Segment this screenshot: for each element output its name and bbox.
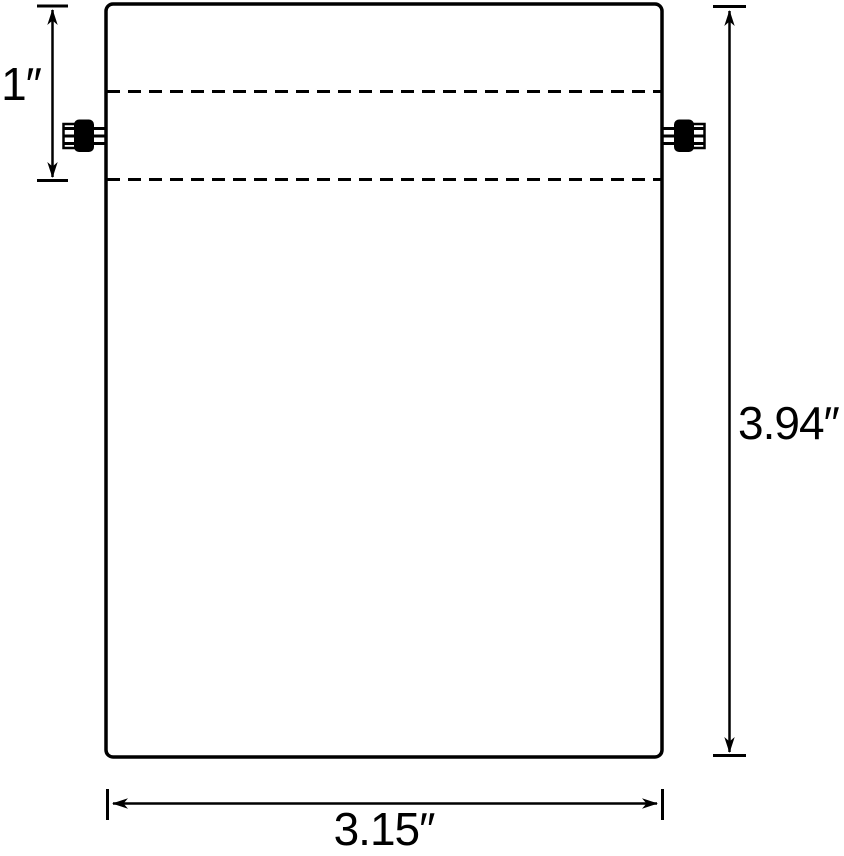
cord-lock-toggle: [674, 120, 694, 153]
total-height-dimension: [713, 7, 746, 756]
right-cord-lock: [662, 120, 705, 153]
bag: [106, 4, 662, 757]
bag-outline: [106, 4, 662, 757]
left-cord-lock: [64, 120, 107, 153]
diagram-stage: 1″ 3.94″ 3.15″: [0, 0, 844, 856]
channel-height-label: 1″: [0, 59, 46, 111]
cord-lock-toggle: [74, 120, 94, 153]
total-height-label: 3.94″: [738, 398, 839, 450]
total-width-label: 3.15″: [294, 804, 474, 856]
diagram-canvas: [0, 0, 844, 856]
